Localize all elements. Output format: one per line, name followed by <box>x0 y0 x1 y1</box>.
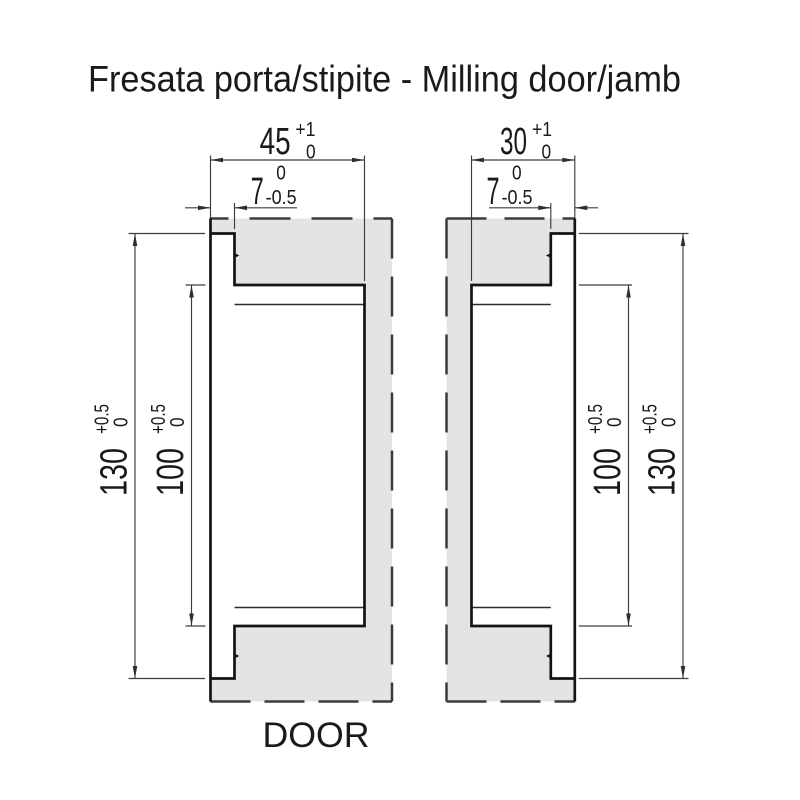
svg-text:-0.5: -0.5 <box>502 187 533 209</box>
svg-text:DOOR: DOOR <box>263 716 370 755</box>
svg-text:0: 0 <box>512 163 522 185</box>
svg-text:7: 7 <box>251 171 264 213</box>
svg-text:+1: +1 <box>295 119 315 141</box>
svg-text:45: 45 <box>260 121 291 163</box>
svg-text:100: 100 <box>587 448 629 496</box>
svg-text:7: 7 <box>487 171 500 213</box>
svg-text:0: 0 <box>167 417 189 427</box>
svg-text:100: 100 <box>150 448 192 496</box>
svg-text:0: 0 <box>306 142 316 164</box>
svg-text:0: 0 <box>276 163 286 185</box>
svg-text:-0.5: -0.5 <box>266 187 297 209</box>
svg-text:+1: +1 <box>532 119 552 141</box>
svg-text:0: 0 <box>111 417 133 427</box>
svg-text:130: 130 <box>94 448 136 496</box>
svg-text:0: 0 <box>542 142 552 164</box>
svg-text:130: 130 <box>642 448 684 496</box>
svg-text:Fresata porta/stipite - Millin: Fresata porta/stipite - Milling door/jam… <box>88 59 681 100</box>
svg-text:0: 0 <box>604 417 626 427</box>
svg-text:0: 0 <box>659 417 681 427</box>
svg-text:30: 30 <box>500 121 527 163</box>
